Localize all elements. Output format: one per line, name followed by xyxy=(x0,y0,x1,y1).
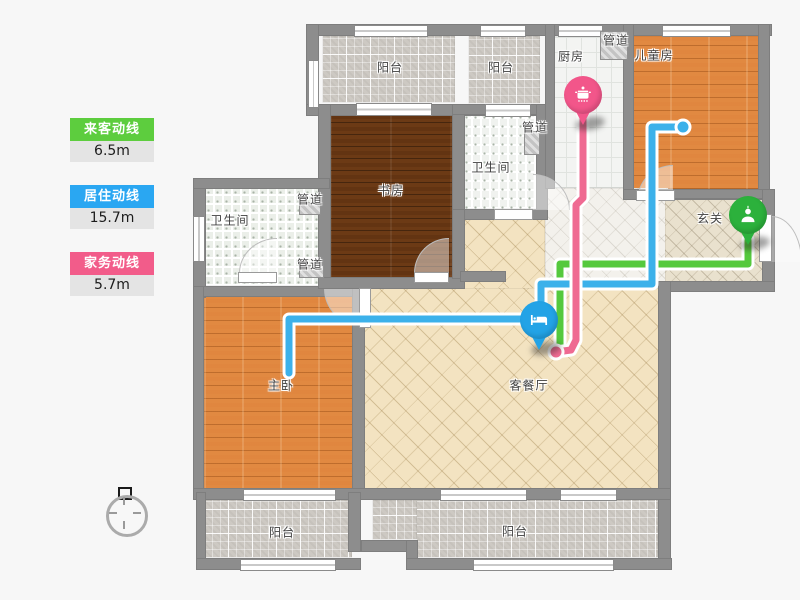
visitor-start-pin xyxy=(728,196,768,246)
duct-hallway-label: 管道 xyxy=(522,119,548,136)
legend-item-living: 居住动线 15.7m xyxy=(70,185,154,229)
visitor-line-value: 6.5m xyxy=(70,141,154,162)
chore-line-label: 家务动线 xyxy=(70,252,154,275)
visitor-line-label: 来客动线 xyxy=(70,118,154,141)
chore-line-value: 5.7m xyxy=(70,275,154,296)
compass-icon xyxy=(101,486,147,536)
living-line-label: 居住动线 xyxy=(70,185,154,208)
duct-bath-bottom-label: 管道 xyxy=(297,256,323,273)
balcony-bottom-right-label: 阳台 xyxy=(502,523,528,540)
balcony-top-left-label: 阳台 xyxy=(377,59,403,76)
living-route-end-dot xyxy=(676,120,690,134)
living-start-pin xyxy=(519,301,559,351)
kids-room-label: 儿童房 xyxy=(634,47,673,64)
living-line-value: 15.7m xyxy=(70,208,154,229)
pot-icon xyxy=(572,84,594,106)
legend-item-chore: 家务动线 5.7m xyxy=(70,252,154,296)
floorplan-canvas: 阳台阳台厨房管道儿童房管道卫生间书房管道卫生间管道玄关主卧客餐厅阳台阳台 xyxy=(0,0,800,600)
compass-circle xyxy=(106,495,148,537)
kitchen-label: 厨房 xyxy=(558,48,584,65)
balcony-bottom-left-label: 阳台 xyxy=(269,524,295,541)
study-label: 书房 xyxy=(378,182,404,199)
chore-start-pin xyxy=(563,76,603,126)
master-bedroom-label: 主卧 xyxy=(268,377,294,394)
legend-item-visitor: 来客动线 6.5m xyxy=(70,118,154,162)
person-icon xyxy=(737,204,759,226)
duct-bath-top-label: 管道 xyxy=(297,191,323,208)
bed-icon xyxy=(528,309,550,331)
bathroom-left-label: 卫生间 xyxy=(210,212,249,229)
living-dining-label: 客餐厅 xyxy=(509,377,548,394)
foyer-label: 玄关 xyxy=(697,210,723,227)
bathroom-mid-label: 卫生间 xyxy=(471,159,510,176)
duct-kitchen-label: 管道 xyxy=(603,32,629,49)
balcony-top-mid-label: 阳台 xyxy=(488,59,514,76)
